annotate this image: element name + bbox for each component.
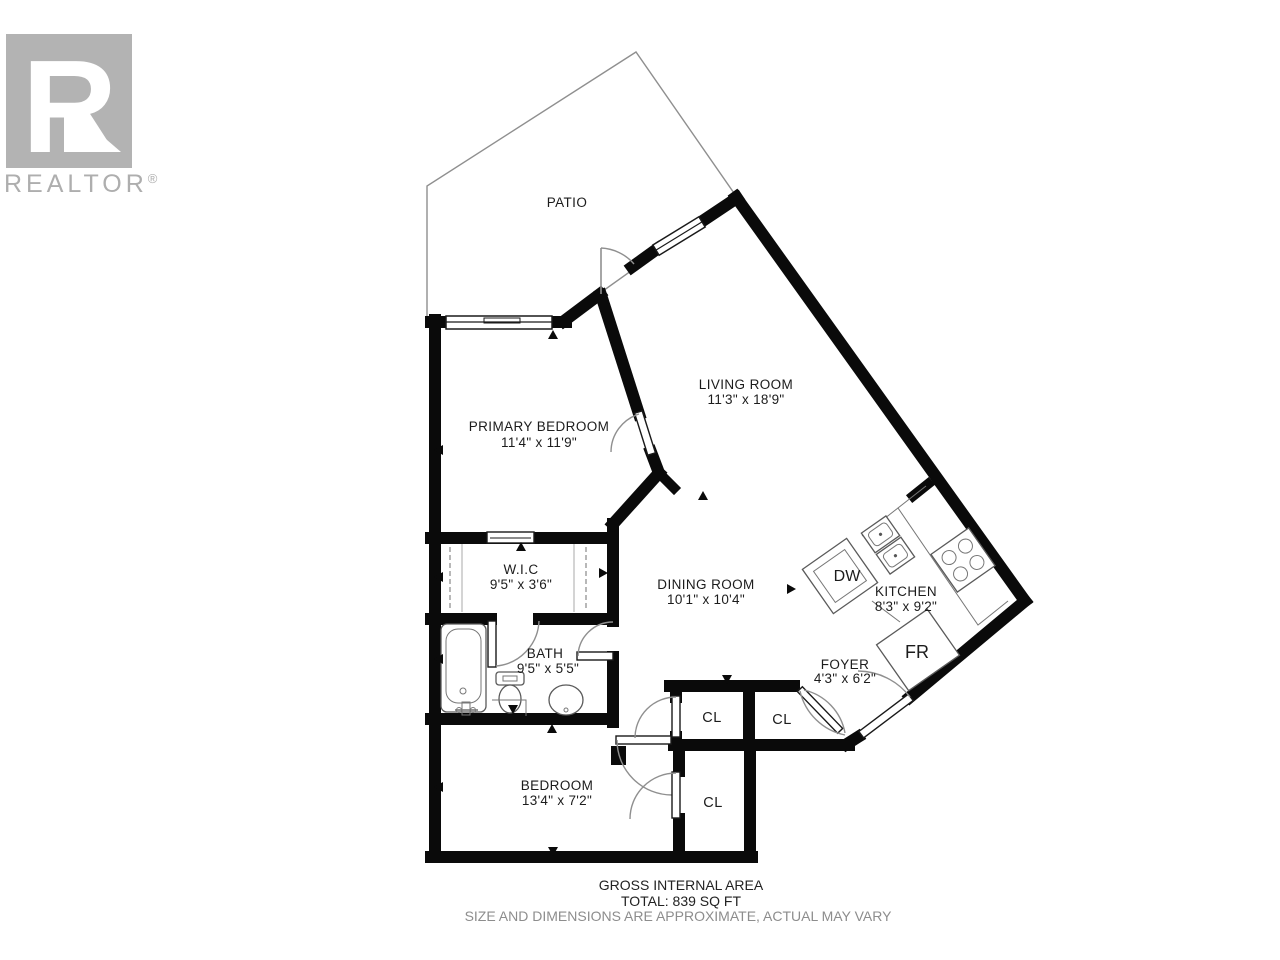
living-room-window [653, 217, 705, 255]
realtor-logo-r-icon: R [22, 33, 117, 180]
footer: GROSS INTERNAL AREA TOTAL: 839 SQ FT SIZ… [465, 877, 893, 924]
registered-mark: ® [148, 171, 162, 186]
primary-bedroom-door [611, 411, 655, 455]
living-room-label: LIVING ROOM [699, 377, 793, 392]
bathtub [441, 624, 486, 715]
closet-1-label: CL [702, 710, 722, 726]
foyer-label: FOYER [821, 657, 870, 672]
bedroom-window [446, 316, 552, 329]
bath-dims: 9'5" x 5'5" [517, 661, 579, 676]
closet-2-angled-door [797, 687, 845, 734]
bedroom-dims: 13'4" x 7'2" [522, 793, 592, 808]
realtor-logo-word: REALTOR [4, 170, 148, 198]
living-room-dims: 11'3" x 18'9" [708, 392, 785, 407]
primary-bedroom-dims: 11'4" x 11'9" [501, 435, 577, 450]
primary-bedroom-label: PRIMARY BEDROOM [469, 419, 610, 434]
dishwasher-label: DW [834, 568, 862, 585]
patio-outline [427, 52, 736, 318]
bedroom-label: BEDROOM [521, 778, 594, 793]
wic-dims: 9'5" x 3'6" [490, 577, 552, 592]
dining-room-dims: 10'1" x 10'4" [667, 592, 745, 607]
kitchen-sink [861, 516, 914, 574]
realtor-logo-wordmark: REALTOR® [4, 170, 161, 198]
wic-label: W.I.C [504, 562, 539, 577]
closet-2-label: CL [772, 712, 792, 728]
bath-hall-door [577, 622, 613, 660]
wic-sliding-door [487, 532, 534, 543]
footer-gross-area: GROSS INTERNAL AREA [599, 877, 764, 893]
footer-total: TOTAL: 839 SQ FT [621, 893, 742, 909]
fridge-label: FR [905, 642, 929, 662]
realtor-logo: R REALTOR® [4, 33, 161, 198]
kitchen-label: KITCHEN [875, 584, 937, 599]
foyer-dims: 4'3" x 6'2" [814, 671, 876, 686]
bath-label: BATH [527, 646, 564, 661]
closet-3-door [630, 772, 680, 819]
closet-3-label: CL [703, 795, 723, 811]
dining-room-label: DINING ROOM [657, 577, 754, 592]
kitchen-dims: 8'3" x 9'2" [875, 599, 937, 614]
floorplan-drawing: R REALTOR® [0, 0, 1280, 960]
patio-label: PATIO [547, 195, 588, 210]
closet-1-door [635, 696, 680, 738]
walls [431, 197, 1025, 857]
footer-disclaimer: SIZE AND DIMENSIONS ARE APPROXIMATE, ACT… [465, 908, 893, 924]
floorplan-page: R REALTOR® [0, 0, 1280, 960]
